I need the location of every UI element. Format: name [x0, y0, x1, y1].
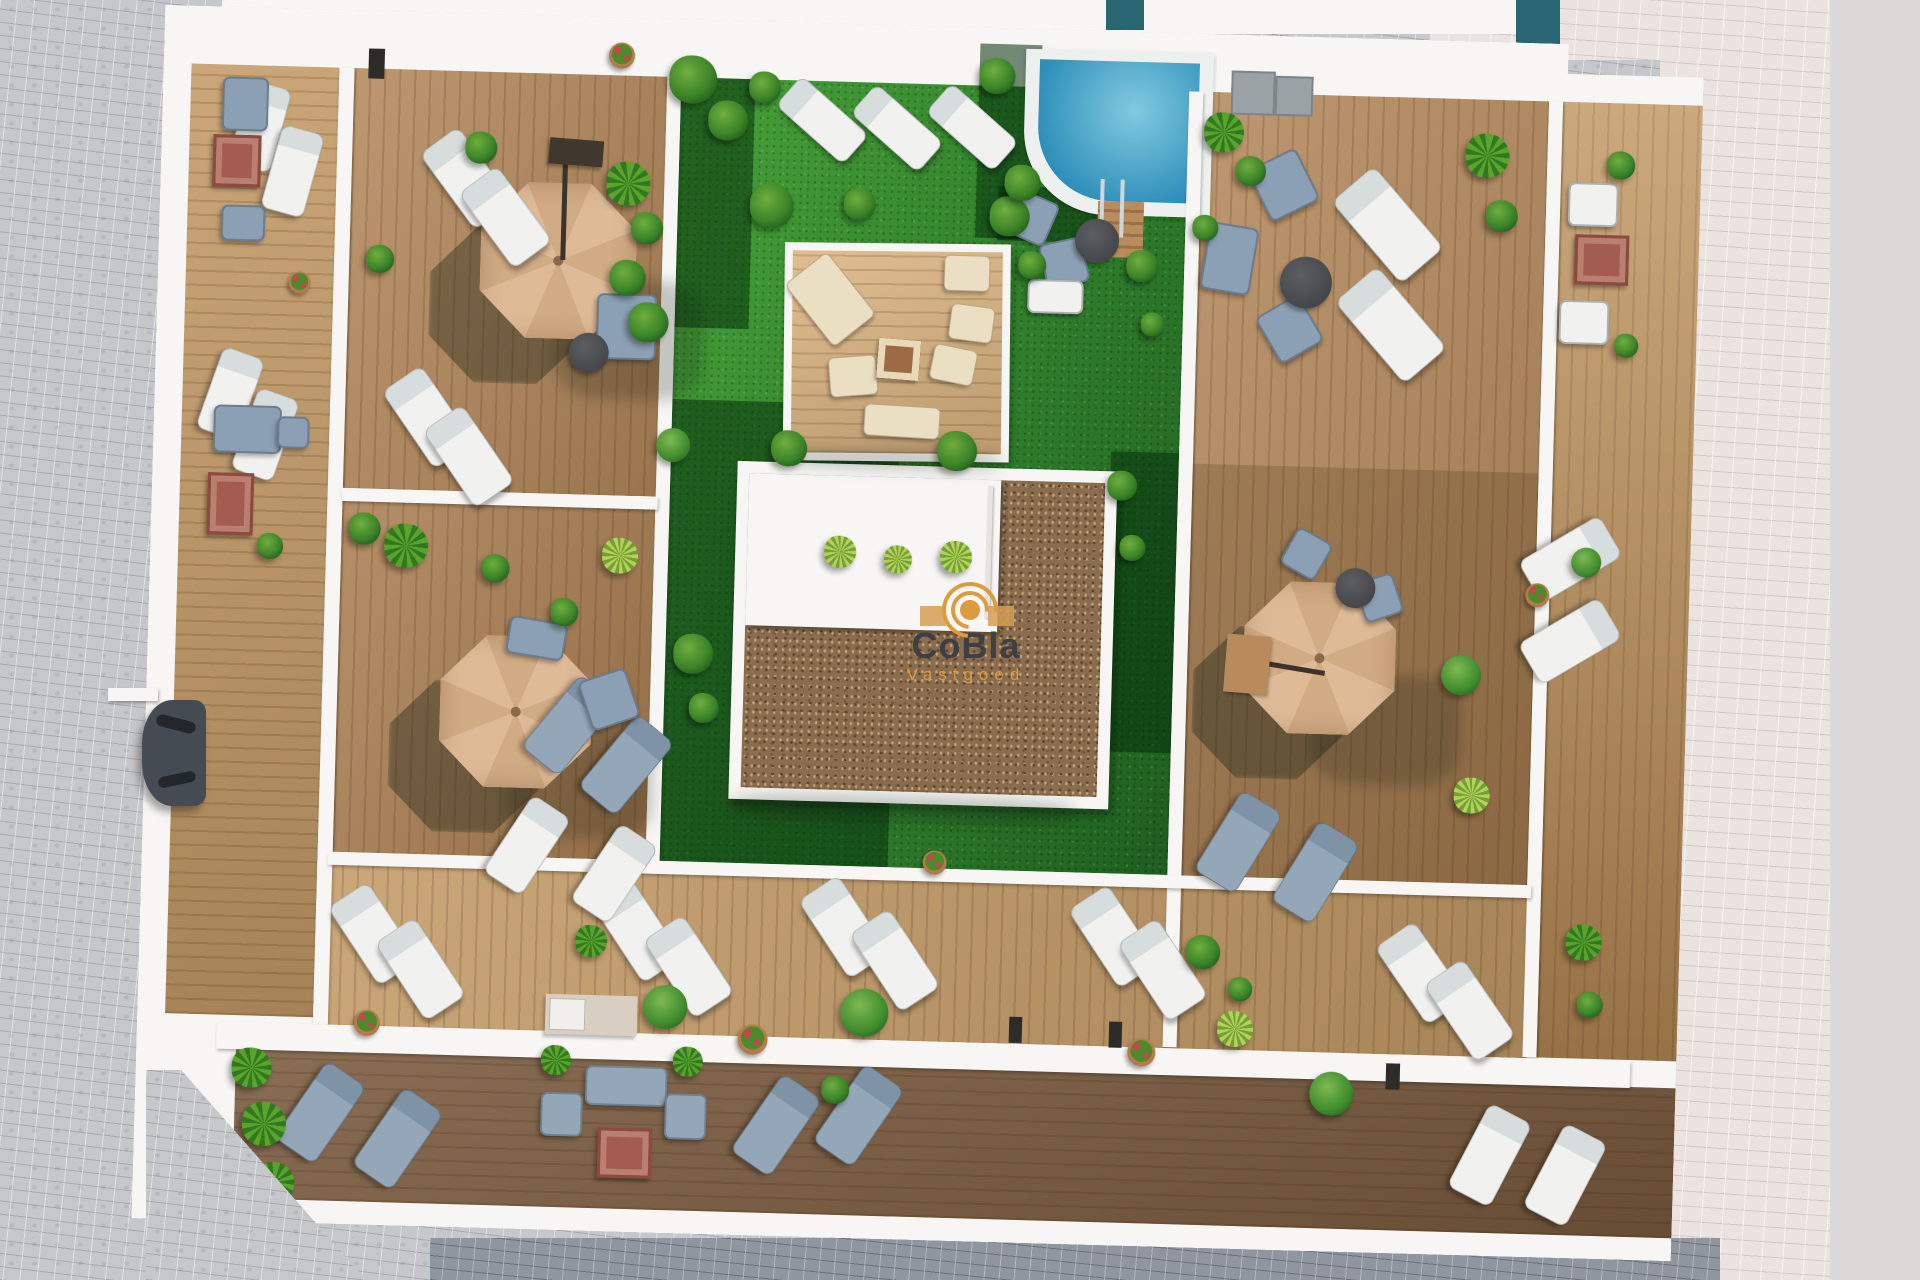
pergola-table: [876, 338, 921, 381]
outdoor-sofa: [1027, 279, 1084, 315]
outdoor-sofa: [213, 404, 282, 454]
outdoor-sofa: [540, 1092, 583, 1137]
outdoor-sofa: [221, 204, 266, 241]
solar-panel-top-left: [1106, 0, 1144, 30]
rooftop-aerial-render: CoBla Vastgoed: [0, 0, 1920, 1280]
car-windshield: [155, 713, 197, 734]
light-post: [1009, 1017, 1023, 1043]
car-rear-window: [157, 770, 196, 789]
parked-car: [142, 700, 206, 806]
flower-pot: [609, 42, 636, 69]
bench: [548, 137, 604, 167]
light-post: [1385, 1063, 1400, 1089]
light-post: [1109, 1021, 1123, 1047]
fire-table: [597, 1127, 652, 1178]
watermark: CoBla Vastgoed: [880, 582, 1052, 685]
pergola-seat: [828, 354, 879, 398]
parasol-base: [1223, 634, 1272, 695]
outdoor-sofa: [585, 1065, 668, 1107]
fire-table: [206, 472, 254, 535]
solar-panel-top-right: [1516, 0, 1560, 50]
fire-table: [1574, 234, 1629, 285]
light-post: [368, 48, 385, 78]
pergola-seat: [863, 403, 941, 440]
outdoor-sofa: [1558, 300, 1609, 345]
outdoor-sofa: [1568, 182, 1619, 227]
street-pavement-far-right: [1830, 0, 1920, 1280]
pergola-seat: [944, 255, 991, 292]
roof-unit: [1231, 71, 1276, 116]
kitchen-unit: [549, 998, 586, 1031]
outdoor-sofa: [277, 416, 310, 449]
outdoor-sofa: [664, 1093, 707, 1140]
gate-wall: [108, 688, 158, 701]
outdoor-sofa: [222, 76, 269, 131]
watermark-logo-icon: [880, 582, 1052, 628]
watermark-subtitle-text: Vastgoed: [880, 665, 1052, 685]
roof-unit: [1275, 76, 1314, 117]
pergola-seat: [947, 303, 995, 345]
fire-table: [212, 134, 261, 187]
